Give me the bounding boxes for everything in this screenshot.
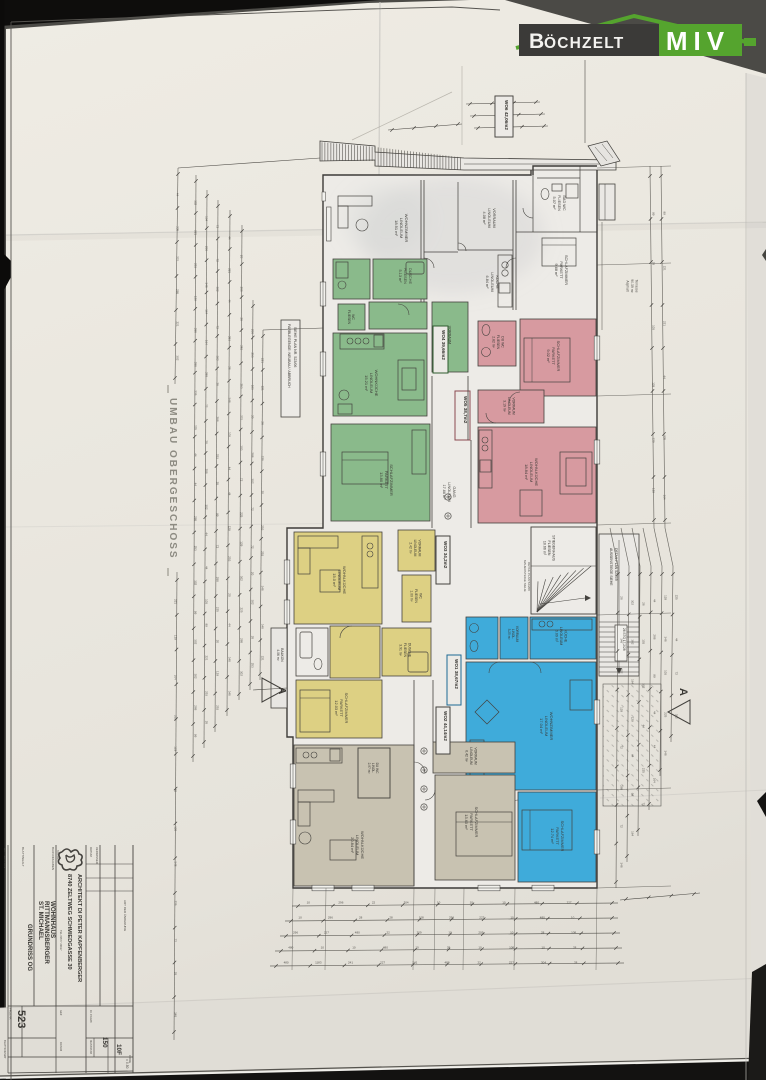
svg-text:10: 10 (415, 946, 419, 950)
svg-text:221: 221 (261, 358, 265, 363)
svg-text:253: 253 (194, 263, 198, 268)
svg-text:44: 44 (228, 299, 232, 303)
svg-text:BLATTFORMAT: BLATTFORMAT (3, 1040, 7, 1059)
svg-text:103: 103 (205, 599, 209, 604)
svg-text:72: 72 (675, 672, 679, 676)
svg-text:8740 ZELTWEG SCHMIEDGASSE 30: 8740 ZELTWEG SCHMIEDGASSE 30 (66, 874, 72, 970)
svg-text:15.21 m²: 15.21 m² (364, 375, 369, 391)
svg-text:22: 22 (372, 901, 376, 905)
svg-text:6.84 m²: 6.84 m² (485, 276, 489, 290)
svg-text:DUSCHE: DUSCHE (408, 268, 412, 285)
svg-text:253: 253 (251, 353, 255, 358)
svg-text:221: 221 (194, 230, 198, 235)
svg-text:ÖCHZELT: ÖCHZELT (544, 35, 624, 52)
svg-text:227: 227 (567, 901, 572, 905)
svg-text:GEZ: GEZ (59, 1010, 63, 1016)
svg-text:348: 348 (620, 638, 624, 643)
svg-text:241: 241 (348, 961, 353, 965)
svg-text:LINOLEUM: LINOLEUM (469, 747, 473, 765)
svg-text:GANG: GANG (452, 486, 456, 497)
svg-text:72: 72 (251, 507, 255, 511)
svg-text:480: 480 (444, 961, 449, 965)
svg-text:20: 20 (261, 491, 265, 495)
svg-text:b/h = 594 / 841: b/h = 594 / 841 (3, 848, 7, 868)
svg-text:72: 72 (642, 803, 646, 807)
svg-text:28: 28 (205, 440, 209, 444)
svg-text:12.74 m²: 12.74 m² (550, 828, 555, 844)
svg-text:221: 221 (176, 322, 180, 327)
svg-text:44: 44 (653, 599, 657, 603)
svg-text:227: 227 (380, 961, 385, 965)
svg-text:VORRAUM: VORRAUM (492, 208, 496, 227)
svg-text:225: 225 (261, 456, 265, 461)
svg-text:28: 28 (228, 366, 232, 370)
svg-text:304: 304 (404, 901, 409, 905)
svg-text:= 0.50: = 0.50 (125, 1059, 129, 1069)
svg-text:99: 99 (194, 611, 198, 615)
svg-text:WO6 42,06m2: WO6 42,06m2 (504, 100, 509, 130)
svg-text:20.84 m²: 20.84 m² (350, 837, 355, 853)
svg-text:PARKETT: PARKETT (559, 261, 563, 279)
svg-text:4.06 m²: 4.06 m² (276, 649, 280, 661)
svg-text:288: 288 (240, 287, 244, 292)
svg-text:302: 302 (631, 639, 635, 644)
svg-text:302: 302 (240, 671, 244, 676)
svg-text:150: 150 (101, 1037, 108, 1048)
svg-text:302: 302 (216, 287, 220, 292)
svg-text:BLATTINHALT: BLATTINHALT (21, 847, 25, 867)
svg-text:296: 296 (338, 901, 343, 905)
svg-text:22: 22 (478, 961, 482, 965)
svg-text:164: 164 (653, 778, 657, 783)
svg-text:10: 10 (321, 946, 325, 950)
svg-text:108: 108 (419, 916, 424, 920)
svg-text:72: 72 (216, 259, 220, 263)
svg-text:SCHLAFZIMMER: SCHLAFZIMMER (564, 255, 568, 285)
svg-text:227: 227 (509, 961, 514, 965)
svg-text:221: 221 (663, 266, 667, 271)
svg-text:BAUVORHABEN: BAUVORHABEN (51, 847, 55, 870)
svg-text:129: 129 (631, 717, 635, 722)
svg-text:72: 72 (240, 478, 244, 482)
svg-text:WC: WC (351, 314, 355, 320)
svg-text:253: 253 (251, 663, 255, 668)
svg-text:44: 44 (228, 623, 232, 627)
svg-text:302: 302 (620, 668, 624, 673)
svg-text:288: 288 (205, 469, 209, 474)
svg-text:44: 44 (642, 725, 646, 729)
svg-text:225: 225 (240, 608, 244, 613)
svg-text:253: 253 (205, 691, 209, 696)
svg-text:Terrasse: Terrasse (634, 279, 638, 292)
svg-text:348: 348 (261, 586, 265, 591)
svg-text:6.09 m²: 6.09 m² (554, 630, 558, 643)
svg-text:253: 253 (216, 705, 220, 710)
svg-text:221: 221 (240, 415, 244, 420)
svg-text:28: 28 (574, 961, 578, 965)
svg-text:288: 288 (251, 452, 255, 457)
svg-text:10: 10 (307, 901, 311, 905)
svg-text:164: 164 (631, 679, 635, 684)
svg-text:28: 28 (573, 946, 577, 950)
svg-text:2.82 m²: 2.82 m² (492, 336, 496, 348)
svg-text:VORRAUM: VORRAUM (511, 397, 515, 415)
svg-text:4.08 m²: 4.08 m² (482, 212, 486, 226)
svg-text:LINOLEUM: LINOLEUM (507, 397, 511, 415)
svg-text:225: 225 (642, 768, 646, 773)
svg-text:72: 72 (216, 545, 220, 549)
svg-text:3.91 m²: 3.91 m² (399, 644, 403, 656)
svg-text:10: 10 (352, 946, 356, 950)
svg-text:227: 227 (324, 931, 329, 935)
svg-text:WO2 44,14m2: WO2 44,14m2 (443, 711, 448, 741)
svg-text:523: 523 (15, 1010, 27, 1028)
svg-text:10: 10 (510, 931, 514, 935)
svg-text:28: 28 (205, 721, 209, 725)
svg-text:225: 225 (194, 390, 198, 395)
svg-text:302: 302 (251, 479, 255, 484)
svg-text:253: 253 (216, 454, 220, 459)
svg-text:225: 225 (240, 512, 244, 517)
svg-text:164: 164 (205, 216, 209, 221)
svg-text:164: 164 (205, 340, 209, 345)
svg-text:44: 44 (194, 453, 198, 457)
svg-text:288: 288 (194, 516, 198, 521)
svg-text:129: 129 (652, 488, 656, 493)
svg-text:FLIESEN: FLIESEN (347, 310, 351, 325)
svg-text:VORRAUM: VORRAUM (473, 747, 477, 765)
svg-text:10: 10 (298, 916, 302, 920)
svg-text:348: 348 (174, 861, 178, 866)
svg-text:ART DER ÄNDERUNG: ART DER ÄNDERUNG (123, 900, 127, 932)
svg-text:6.42 m²: 6.42 m² (465, 750, 469, 762)
svg-text:LINOLEUM: LINOLEUM (490, 272, 494, 291)
svg-text:44: 44 (228, 492, 232, 496)
svg-text:44: 44 (176, 193, 180, 197)
svg-text:302: 302 (194, 639, 198, 644)
svg-text:17.66 m²: 17.66 m² (442, 485, 446, 501)
svg-text:AUSSENSTIEGE SIEHE: AUSSENSTIEGE SIEHE (609, 548, 613, 586)
svg-text:348: 348 (228, 691, 232, 696)
svg-text:FLIESEN: FLIESEN (496, 335, 500, 350)
svg-text:72: 72 (205, 404, 209, 408)
svg-text:348: 348 (205, 283, 209, 288)
svg-text:28: 28 (174, 972, 178, 976)
svg-text:44: 44 (205, 566, 209, 570)
svg-text:103: 103 (251, 385, 255, 390)
svg-text:253: 253 (240, 345, 244, 350)
svg-text:18.84 m²: 18.84 m² (524, 464, 529, 480)
svg-text:72: 72 (620, 746, 624, 750)
svg-text:28: 28 (620, 596, 624, 600)
svg-text:302: 302 (251, 600, 255, 605)
svg-text:302: 302 (194, 674, 198, 679)
svg-text:348: 348 (620, 863, 624, 868)
svg-text:20: 20 (251, 572, 255, 576)
svg-text:BAD WC: BAD WC (562, 195, 566, 210)
svg-text:253: 253 (228, 336, 232, 341)
svg-text:DETAIL PLAN 523/08: DETAIL PLAN 523/08 (527, 562, 531, 591)
svg-text:5.13 m²: 5.13 m² (398, 270, 402, 284)
svg-text:480: 480 (288, 946, 293, 950)
svg-text:9.02 m²: 9.02 m² (546, 349, 551, 363)
svg-text:225: 225 (663, 435, 667, 440)
svg-text:44: 44 (228, 467, 232, 471)
svg-text:9.68 m²: 9.68 m² (554, 264, 558, 278)
svg-text:44: 44 (631, 754, 635, 758)
svg-text:288: 288 (194, 705, 198, 710)
svg-text:FLIESEN: FLIESEN (403, 268, 407, 284)
svg-text:253: 253 (261, 525, 265, 530)
svg-text:90.39 m²: 90.39 m² (630, 279, 634, 293)
svg-text:480: 480 (540, 916, 545, 920)
svg-text:227: 227 (479, 916, 484, 920)
svg-text:28: 28 (389, 916, 393, 920)
svg-text:103: 103 (240, 445, 244, 450)
svg-text:Asphalt: Asphalt (626, 280, 630, 291)
svg-text:10: 10 (437, 901, 441, 905)
svg-text:209: 209 (417, 931, 422, 935)
svg-text:28: 28 (251, 636, 255, 640)
svg-text:DATUM: DATUM (89, 847, 93, 857)
svg-text:3.25 m²: 3.25 m² (507, 629, 511, 640)
svg-text:72: 72 (620, 825, 624, 829)
svg-text:13.80 m²: 13.80 m² (379, 472, 384, 488)
svg-text:72: 72 (251, 545, 255, 549)
svg-text:2.42 m²: 2.42 m² (409, 542, 413, 554)
svg-text:103: 103 (642, 639, 646, 644)
svg-text:B: B (529, 30, 544, 53)
svg-text:129: 129 (174, 635, 178, 640)
svg-text:164: 164 (205, 309, 209, 314)
svg-text:129: 129 (664, 595, 668, 600)
svg-text:253: 253 (174, 715, 178, 720)
svg-text:WO4 39,66m2: WO4 39,66m2 (441, 330, 446, 360)
svg-text:288: 288 (216, 577, 220, 582)
svg-text:A: A (677, 688, 689, 696)
svg-text:296: 296 (449, 916, 454, 920)
svg-text:302: 302 (642, 683, 646, 688)
svg-text:44: 44 (228, 236, 232, 240)
svg-text:44: 44 (653, 745, 657, 749)
svg-text:28: 28 (174, 789, 178, 793)
svg-text:108: 108 (509, 946, 514, 950)
svg-text:DI. P.KAPF: DI. P.KAPF (89, 1010, 93, 1023)
svg-text:302: 302 (675, 714, 679, 719)
svg-text:253: 253 (240, 384, 244, 389)
svg-text:302: 302 (205, 505, 209, 510)
svg-text:1183: 1183 (315, 961, 322, 965)
svg-text:10F: 10F (115, 1044, 122, 1055)
svg-text:129: 129 (652, 438, 656, 443)
svg-text:10: 10 (448, 931, 452, 935)
svg-text:28: 28 (240, 255, 244, 259)
svg-text:225: 225 (216, 607, 220, 612)
svg-text:480: 480 (383, 946, 388, 950)
svg-text:302: 302 (176, 355, 180, 360)
svg-text:12.03 m²: 12.03 m² (334, 700, 339, 716)
svg-text:ST. MICHAEL: ST. MICHAEL (37, 901, 44, 940)
svg-text:129: 129 (620, 707, 624, 712)
svg-text:SIEHE PLAN NR. 523/06: SIEHE PLAN NR. 523/06 (293, 327, 297, 367)
svg-text:28: 28 (541, 931, 545, 935)
svg-text:28: 28 (359, 916, 363, 920)
svg-text:MAUERSTEIGE SIEHE: MAUERSTEIGE SIEHE (523, 560, 527, 592)
svg-text:99: 99 (663, 212, 667, 216)
svg-text:22: 22 (387, 931, 391, 935)
svg-text:17.04 m²: 17.04 m² (539, 718, 544, 734)
svg-text:302: 302 (240, 576, 244, 581)
svg-text:225: 225 (174, 901, 178, 906)
svg-text:129: 129 (228, 526, 232, 531)
svg-text:3.19 m²: 3.19 m² (503, 400, 507, 412)
svg-text:GRUNDRISS OG: GRUNDRISS OG (26, 924, 32, 971)
svg-text:288: 288 (194, 328, 198, 333)
svg-text:164: 164 (663, 495, 667, 500)
svg-text:DATUM: DATUM (59, 1042, 63, 1051)
svg-text:KÜCHE: KÜCHE (564, 630, 568, 643)
svg-text:2.97 m²: 2.97 m² (367, 763, 371, 774)
svg-text:72: 72 (216, 225, 220, 229)
svg-text:348: 348 (261, 624, 265, 629)
svg-text:302: 302 (216, 356, 220, 361)
svg-text:296: 296 (293, 931, 298, 935)
svg-text:44: 44 (675, 638, 679, 642)
svg-text:164: 164 (174, 675, 178, 680)
svg-text:302: 302 (194, 580, 198, 585)
svg-text:288: 288 (240, 638, 244, 643)
svg-text:DU WC: DU WC (500, 336, 504, 348)
svg-text:44: 44 (653, 711, 657, 715)
svg-text:TEL 03577 22617: TEL 03577 22617 (59, 930, 63, 951)
svg-text:99: 99 (216, 513, 220, 517)
svg-text:18.91 m²: 18.91 m² (394, 220, 399, 236)
svg-text:44: 44 (194, 483, 198, 487)
svg-text:10: 10 (478, 946, 482, 950)
svg-text:44: 44 (205, 532, 209, 536)
svg-text:108: 108 (571, 931, 576, 935)
svg-text:221: 221 (205, 656, 209, 661)
svg-text:5.07 m²: 5.07 m² (552, 197, 556, 211)
svg-text:28: 28 (447, 946, 451, 950)
svg-text:480: 480 (284, 961, 289, 965)
svg-text:225: 225 (675, 595, 679, 600)
svg-text:302: 302 (194, 200, 198, 205)
svg-text:253: 253 (194, 546, 198, 551)
svg-text:44: 44 (663, 375, 667, 379)
svg-text:FARBLEGENDE: NEUBAU / ABBRUCH: FARBLEGENDE: NEUBAU / ABBRUCH (287, 324, 291, 388)
svg-text:288: 288 (205, 246, 209, 251)
svg-text:348: 348 (174, 1012, 178, 1017)
svg-text:WO1 38,67m2: WO1 38,67m2 (454, 659, 459, 689)
svg-text:STB.KAPF: STB.KAPF (56, 850, 59, 862)
svg-text:221: 221 (174, 599, 178, 604)
svg-text:1.00 m²: 1.00 m² (410, 590, 414, 602)
svg-text:FLIESEN: FLIESEN (557, 195, 561, 211)
svg-text:288: 288 (176, 289, 180, 294)
svg-text:253: 253 (228, 556, 232, 561)
svg-text:288: 288 (620, 785, 624, 790)
svg-text:221: 221 (261, 656, 265, 661)
svg-text:10: 10 (571, 916, 575, 920)
svg-text:221: 221 (663, 321, 667, 326)
svg-text:10: 10 (510, 916, 514, 920)
svg-text:10: 10 (502, 901, 506, 905)
svg-text:10.66 m²: 10.66 m² (542, 541, 546, 556)
svg-text:99: 99 (631, 793, 635, 797)
svg-text:253: 253 (261, 551, 265, 556)
svg-text:99: 99 (653, 674, 657, 678)
svg-text:28: 28 (216, 383, 220, 387)
svg-text:FLIESEN: FLIESEN (403, 643, 407, 658)
svg-text:288: 288 (216, 417, 220, 422)
svg-text:MIV: MIV (666, 26, 730, 56)
svg-text:20: 20 (228, 593, 232, 597)
svg-text:288: 288 (205, 372, 209, 377)
svg-text:348: 348 (664, 637, 668, 642)
svg-text:225: 225 (176, 226, 180, 231)
svg-text:LINOLEUM: LINOLEUM (487, 208, 491, 227)
svg-text:28: 28 (642, 602, 646, 606)
svg-text:348: 348 (664, 751, 668, 756)
svg-text:480: 480 (355, 931, 360, 935)
svg-text:221: 221 (261, 386, 265, 391)
svg-text:VERFASSER: VERFASSER (95, 847, 99, 864)
svg-text:221: 221 (228, 268, 232, 273)
svg-text:129: 129 (194, 296, 198, 301)
svg-text:288: 288 (194, 362, 198, 367)
svg-text:288: 288 (653, 634, 657, 639)
svg-text:99: 99 (194, 734, 198, 738)
svg-text:20: 20 (251, 415, 255, 419)
svg-text:209: 209 (478, 931, 483, 935)
svg-text:10: 10 (541, 946, 545, 950)
svg-text:72: 72 (216, 326, 220, 330)
svg-text:129: 129 (652, 382, 656, 387)
svg-text:WO3 34,2m2: WO3 34,2m2 (443, 541, 448, 569)
svg-text:129: 129 (174, 746, 178, 751)
svg-text:99: 99 (205, 624, 209, 628)
svg-text:10: 10 (470, 901, 474, 905)
svg-text:129: 129 (240, 541, 244, 546)
svg-text:225: 225 (664, 712, 668, 717)
svg-text:LINOLEUM: LINOLEUM (559, 627, 563, 645)
svg-text:348: 348 (228, 657, 232, 662)
svg-text:13.60 m²: 13.60 m² (464, 814, 469, 830)
svg-text:288: 288 (251, 329, 255, 334)
svg-text:99: 99 (652, 212, 656, 216)
svg-text:72: 72 (174, 939, 178, 943)
svg-text:20: 20 (216, 640, 220, 644)
svg-text:28: 28 (261, 421, 265, 425)
svg-text:WO5 38,7m2: WO5 38,7m2 (463, 396, 468, 424)
svg-text:129: 129 (174, 826, 178, 831)
svg-text:129: 129 (216, 671, 220, 676)
svg-text:STIEGENHAUS: STIEGENHAUS (552, 535, 556, 561)
svg-text:304: 304 (541, 961, 546, 965)
svg-text:225: 225 (194, 425, 198, 430)
svg-text:296: 296 (328, 916, 333, 920)
svg-text:MASSSTAB: MASSSTAB (89, 1040, 93, 1054)
svg-text:164: 164 (631, 831, 635, 836)
svg-text:480: 480 (534, 901, 539, 905)
svg-text:PROJ.NR.: PROJ.NR. (9, 1008, 13, 1020)
svg-text:103: 103 (664, 670, 668, 675)
svg-text:UMBAU OBERGESCHOSS: UMBAU OBERGESCHOSS (167, 398, 178, 560)
svg-text:FLIESEN: FLIESEN (547, 541, 551, 556)
svg-text:15.0 m²: 15.0 m² (332, 573, 337, 587)
svg-text:221: 221 (176, 256, 180, 261)
